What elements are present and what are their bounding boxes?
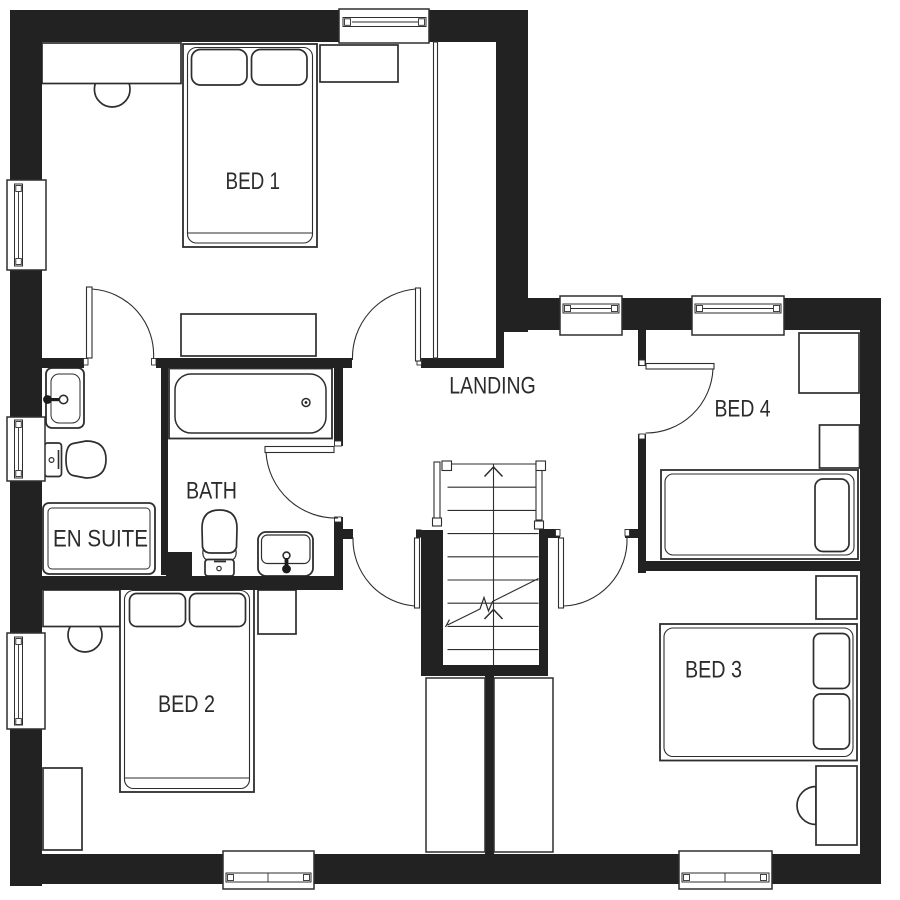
svg-text:BED 3: BED 3 bbox=[685, 657, 742, 684]
svg-text:EN SUITE: EN SUITE bbox=[53, 526, 148, 553]
svg-text:BED 2: BED 2 bbox=[158, 691, 215, 718]
svg-text:BED 1: BED 1 bbox=[226, 168, 281, 195]
svg-text:LANDING: LANDING bbox=[449, 372, 535, 399]
svg-text:BATH: BATH bbox=[186, 478, 237, 505]
svg-text:BED 4: BED 4 bbox=[715, 396, 771, 423]
